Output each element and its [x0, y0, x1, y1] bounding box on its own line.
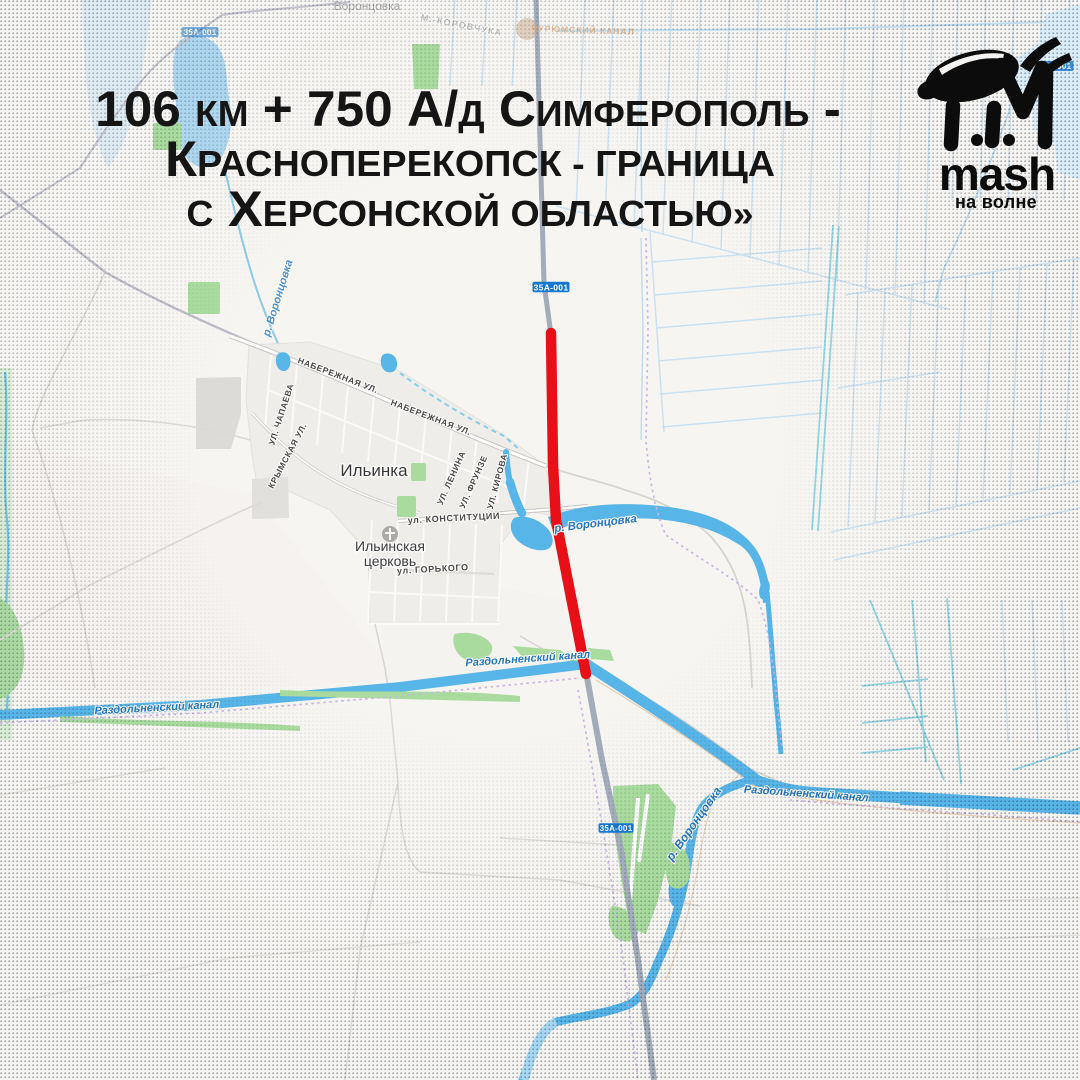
svg-text:на волне: на волне	[955, 192, 1037, 212]
